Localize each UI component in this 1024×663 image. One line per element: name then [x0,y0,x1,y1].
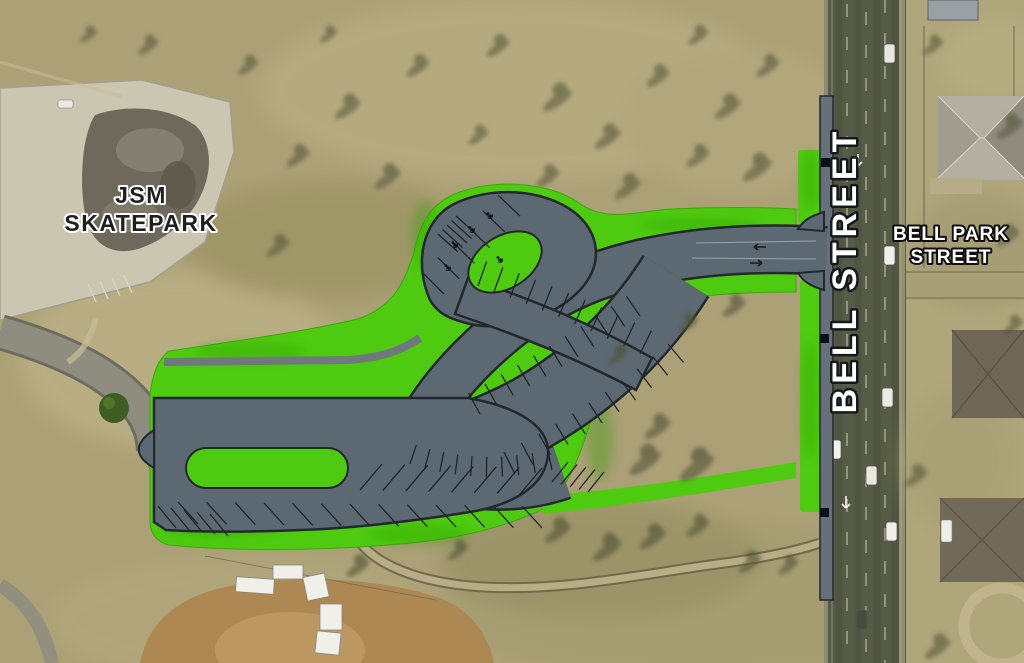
house-roof [940,498,1024,582]
skatepark-label-line2: SKATEPARK [64,210,217,236]
bell-park-street-road [906,270,1024,300]
aerial-site-plan: JSM SKATEPARK BELL STREET BELL PARK STRE… [0,0,1024,663]
large-tree [99,393,129,423]
large-tree-highlight [103,397,115,409]
vehicle [882,388,893,407]
bell-park-label-line1: BELL PARK [893,224,1009,245]
residential-area [899,0,1024,663]
vehicle [856,610,867,629]
shed-roof [928,0,978,20]
vehicle [884,44,895,63]
vehicle [941,520,952,542]
site-plan-canvas: JSM SKATEPARK BELL STREET BELL PARK STRE… [0,0,1024,663]
bell-street-label: BELL STREET [826,127,864,414]
house-roof [938,96,1024,180]
vehicle [886,522,897,541]
vehicle [866,466,877,485]
parking-island [186,448,348,488]
bell-park-label-line2: STREET [911,247,992,268]
vehicle [884,246,895,265]
skatepark-label-line1: JSM [115,182,167,208]
vehicle [58,100,73,108]
house-roof [952,330,1024,418]
